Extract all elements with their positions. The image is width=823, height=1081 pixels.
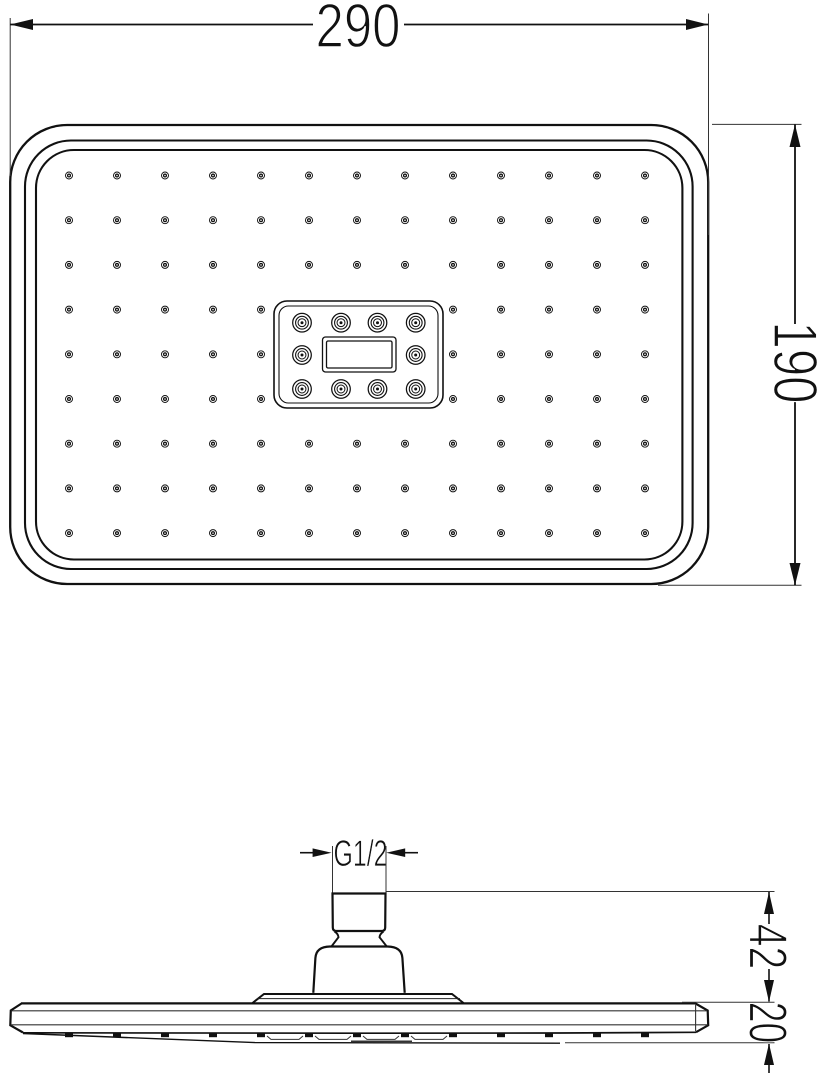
svg-text:42: 42 <box>737 924 797 970</box>
svg-text:290: 290 <box>316 0 401 61</box>
svg-text:190: 190 <box>760 322 823 404</box>
svg-text:G1/2: G1/2 <box>334 832 388 874</box>
svg-text:20: 20 <box>737 1002 797 1044</box>
